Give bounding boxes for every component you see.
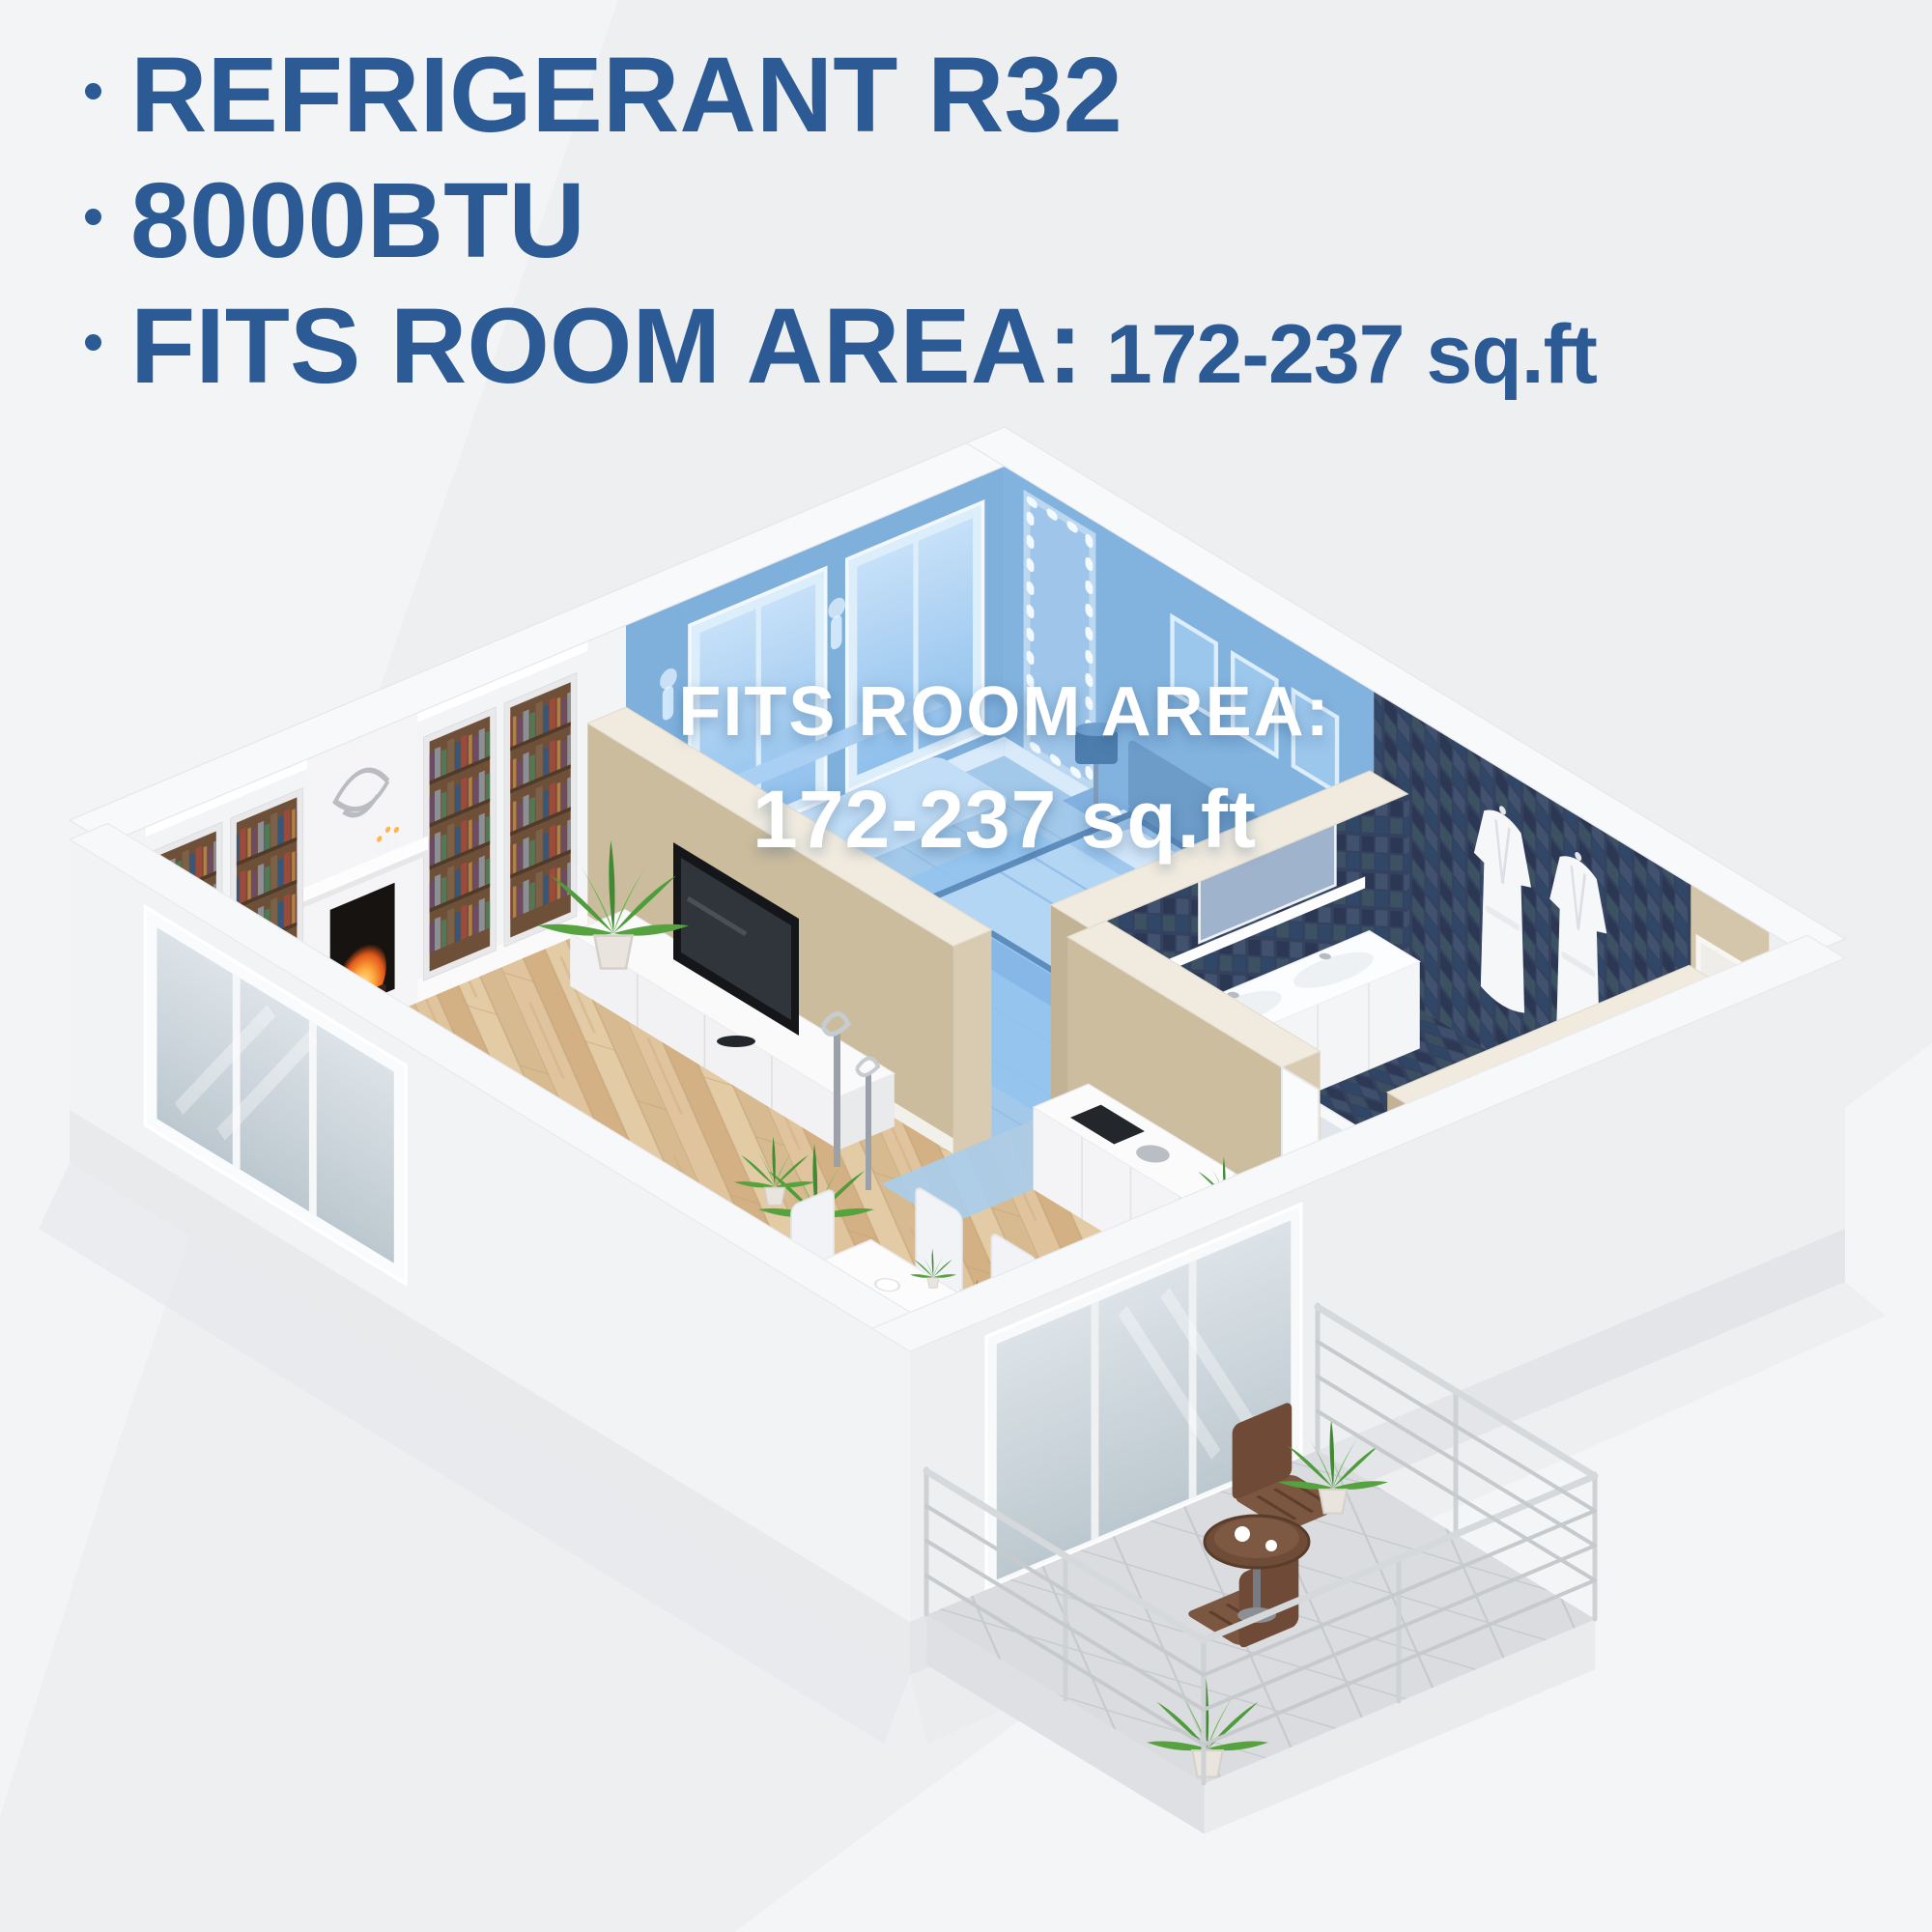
spec-list: REFRIGERANT R32 8000BTU FITS ROOM AREA:1…: [85, 33, 1597, 410]
cup: [1265, 1540, 1277, 1551]
room-area-value: 172-237 sq.ft: [1106, 308, 1597, 401]
room-area-label: FITS ROOM AREA:: [130, 287, 1083, 406]
cup: [1235, 1526, 1250, 1542]
highlight-value: 172-237 sq.ft: [753, 773, 1257, 867]
spec-text-refrigerant: REFRIGERANT R32: [130, 33, 1122, 158]
infographic-canvas: REFRIGERANT R32 8000BTU FITS ROOM AREA:1…: [0, 0, 1932, 1932]
bookcase: [504, 673, 577, 947]
bookcase: [424, 707, 497, 980]
spec-text-room-area: FITS ROOM AREA:172-237 sq.ft: [130, 284, 1597, 417]
spec-bullet-btu: 8000BTU: [85, 158, 1597, 284]
spec-bullet-room-area: FITS ROOM AREA:172-237 sq.ft: [85, 284, 1597, 410]
bullet-dot-icon: [85, 83, 101, 99]
bullet-dot-icon: [85, 334, 101, 351]
spec-text-btu: 8000BTU: [130, 158, 585, 284]
bullet-dot-icon: [85, 209, 101, 225]
highlight-title: FITS ROOM AREA:: [678, 672, 1330, 752]
spec-bullet-refrigerant: REFRIGERANT R32: [85, 33, 1597, 158]
